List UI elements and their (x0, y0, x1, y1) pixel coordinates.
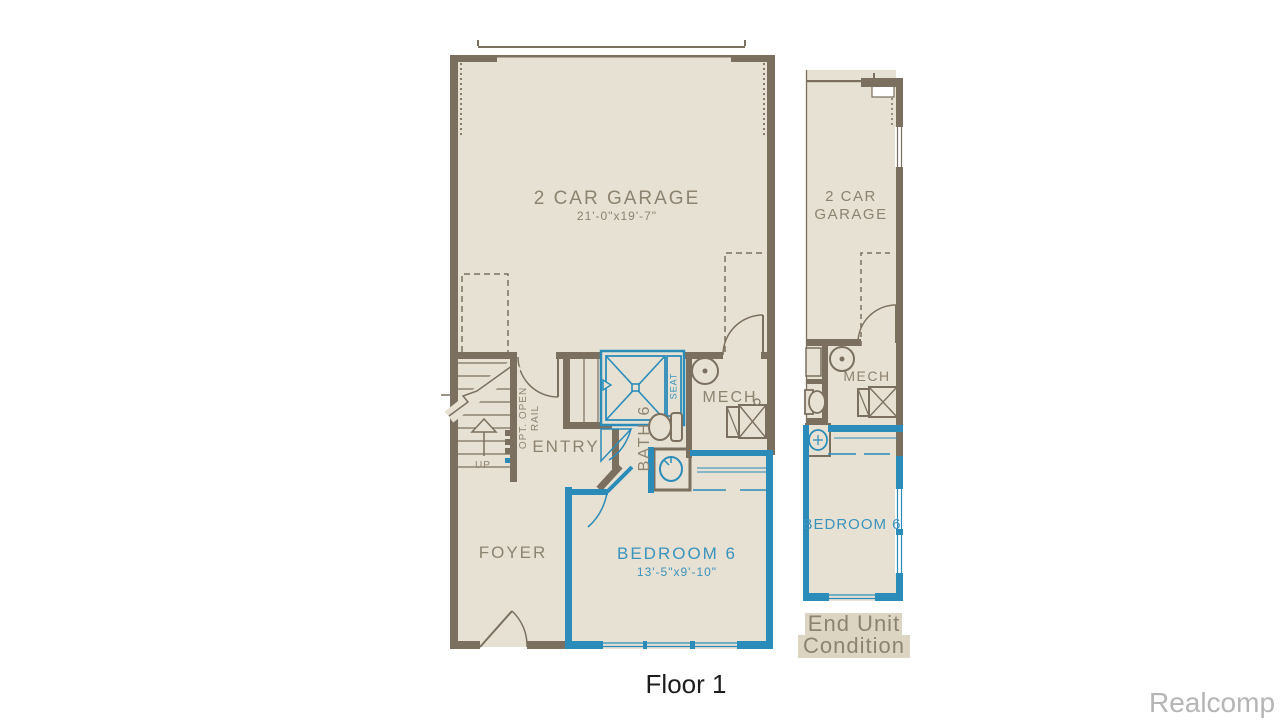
toilet-tank (671, 413, 682, 441)
main-floor-plan: UP OPT. OPEN RAIL SEAT (441, 40, 775, 649)
end-unit-plan: 2 CAR GARAGE MECH (798, 70, 910, 658)
bedroom-window-bottom (829, 593, 875, 601)
bedroom-dims: 13'-5"x9'-10" (637, 565, 717, 579)
stair-wall (510, 352, 517, 482)
stairs-up-label: UP (475, 460, 491, 471)
end-garage-label-line2: GARAGE (814, 206, 887, 223)
garage-dims: 21'-0"x19'-7" (577, 209, 657, 223)
toilet (809, 391, 825, 413)
floor-plan-image: UP OPT. OPEN RAIL SEAT (0, 0, 1280, 720)
mech-label: MECH (702, 389, 757, 406)
foyer-label: FOYER (479, 543, 548, 562)
end-unit-caption: End Unit Condition (798, 611, 910, 658)
garage-window (895, 127, 904, 167)
closet-wall (690, 450, 773, 456)
entry-label: ENTRY (532, 437, 599, 456)
end-garage-label-line1: 2 CAR (825, 188, 877, 205)
bath-label: BATH 6 (636, 405, 653, 472)
shower-seat-label: SEAT (669, 373, 679, 400)
shower-partial (806, 348, 821, 376)
bedroom-windows (603, 641, 737, 649)
end-unit-caption-line2: Condition (803, 633, 905, 658)
bedroom-label: BEDROOM 6 (617, 544, 737, 563)
watermark: Realcomp (1149, 687, 1275, 718)
end-mech-label: MECH (843, 368, 890, 384)
garage-label: 2 CAR GARAGE (534, 188, 701, 209)
stairs-note-line2: RAIL (530, 405, 541, 431)
end-bedroom-label: BEDROOM 6 (802, 516, 901, 533)
garage-door-line (478, 46, 745, 48)
floor-plan-page: UP OPT. OPEN RAIL SEAT (0, 0, 1280, 720)
stairs-note-line1: OPT. OPEN (518, 387, 529, 449)
floor-caption: Floor 1 (646, 669, 727, 699)
